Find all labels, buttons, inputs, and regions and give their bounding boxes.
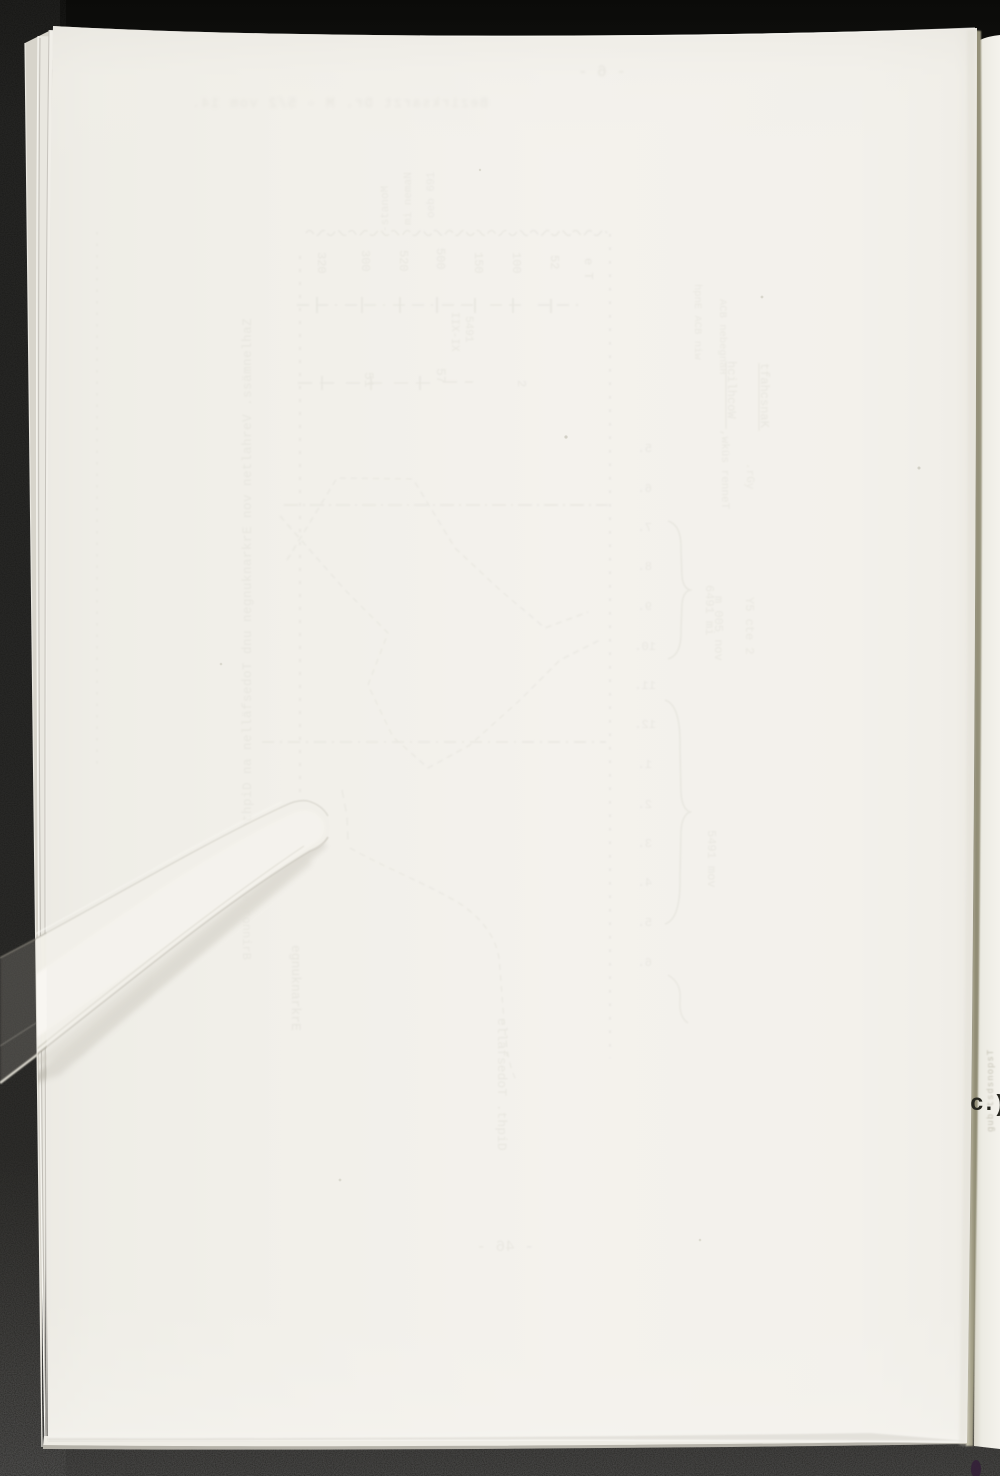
svg-text:): ): [993, 1092, 1000, 1118]
